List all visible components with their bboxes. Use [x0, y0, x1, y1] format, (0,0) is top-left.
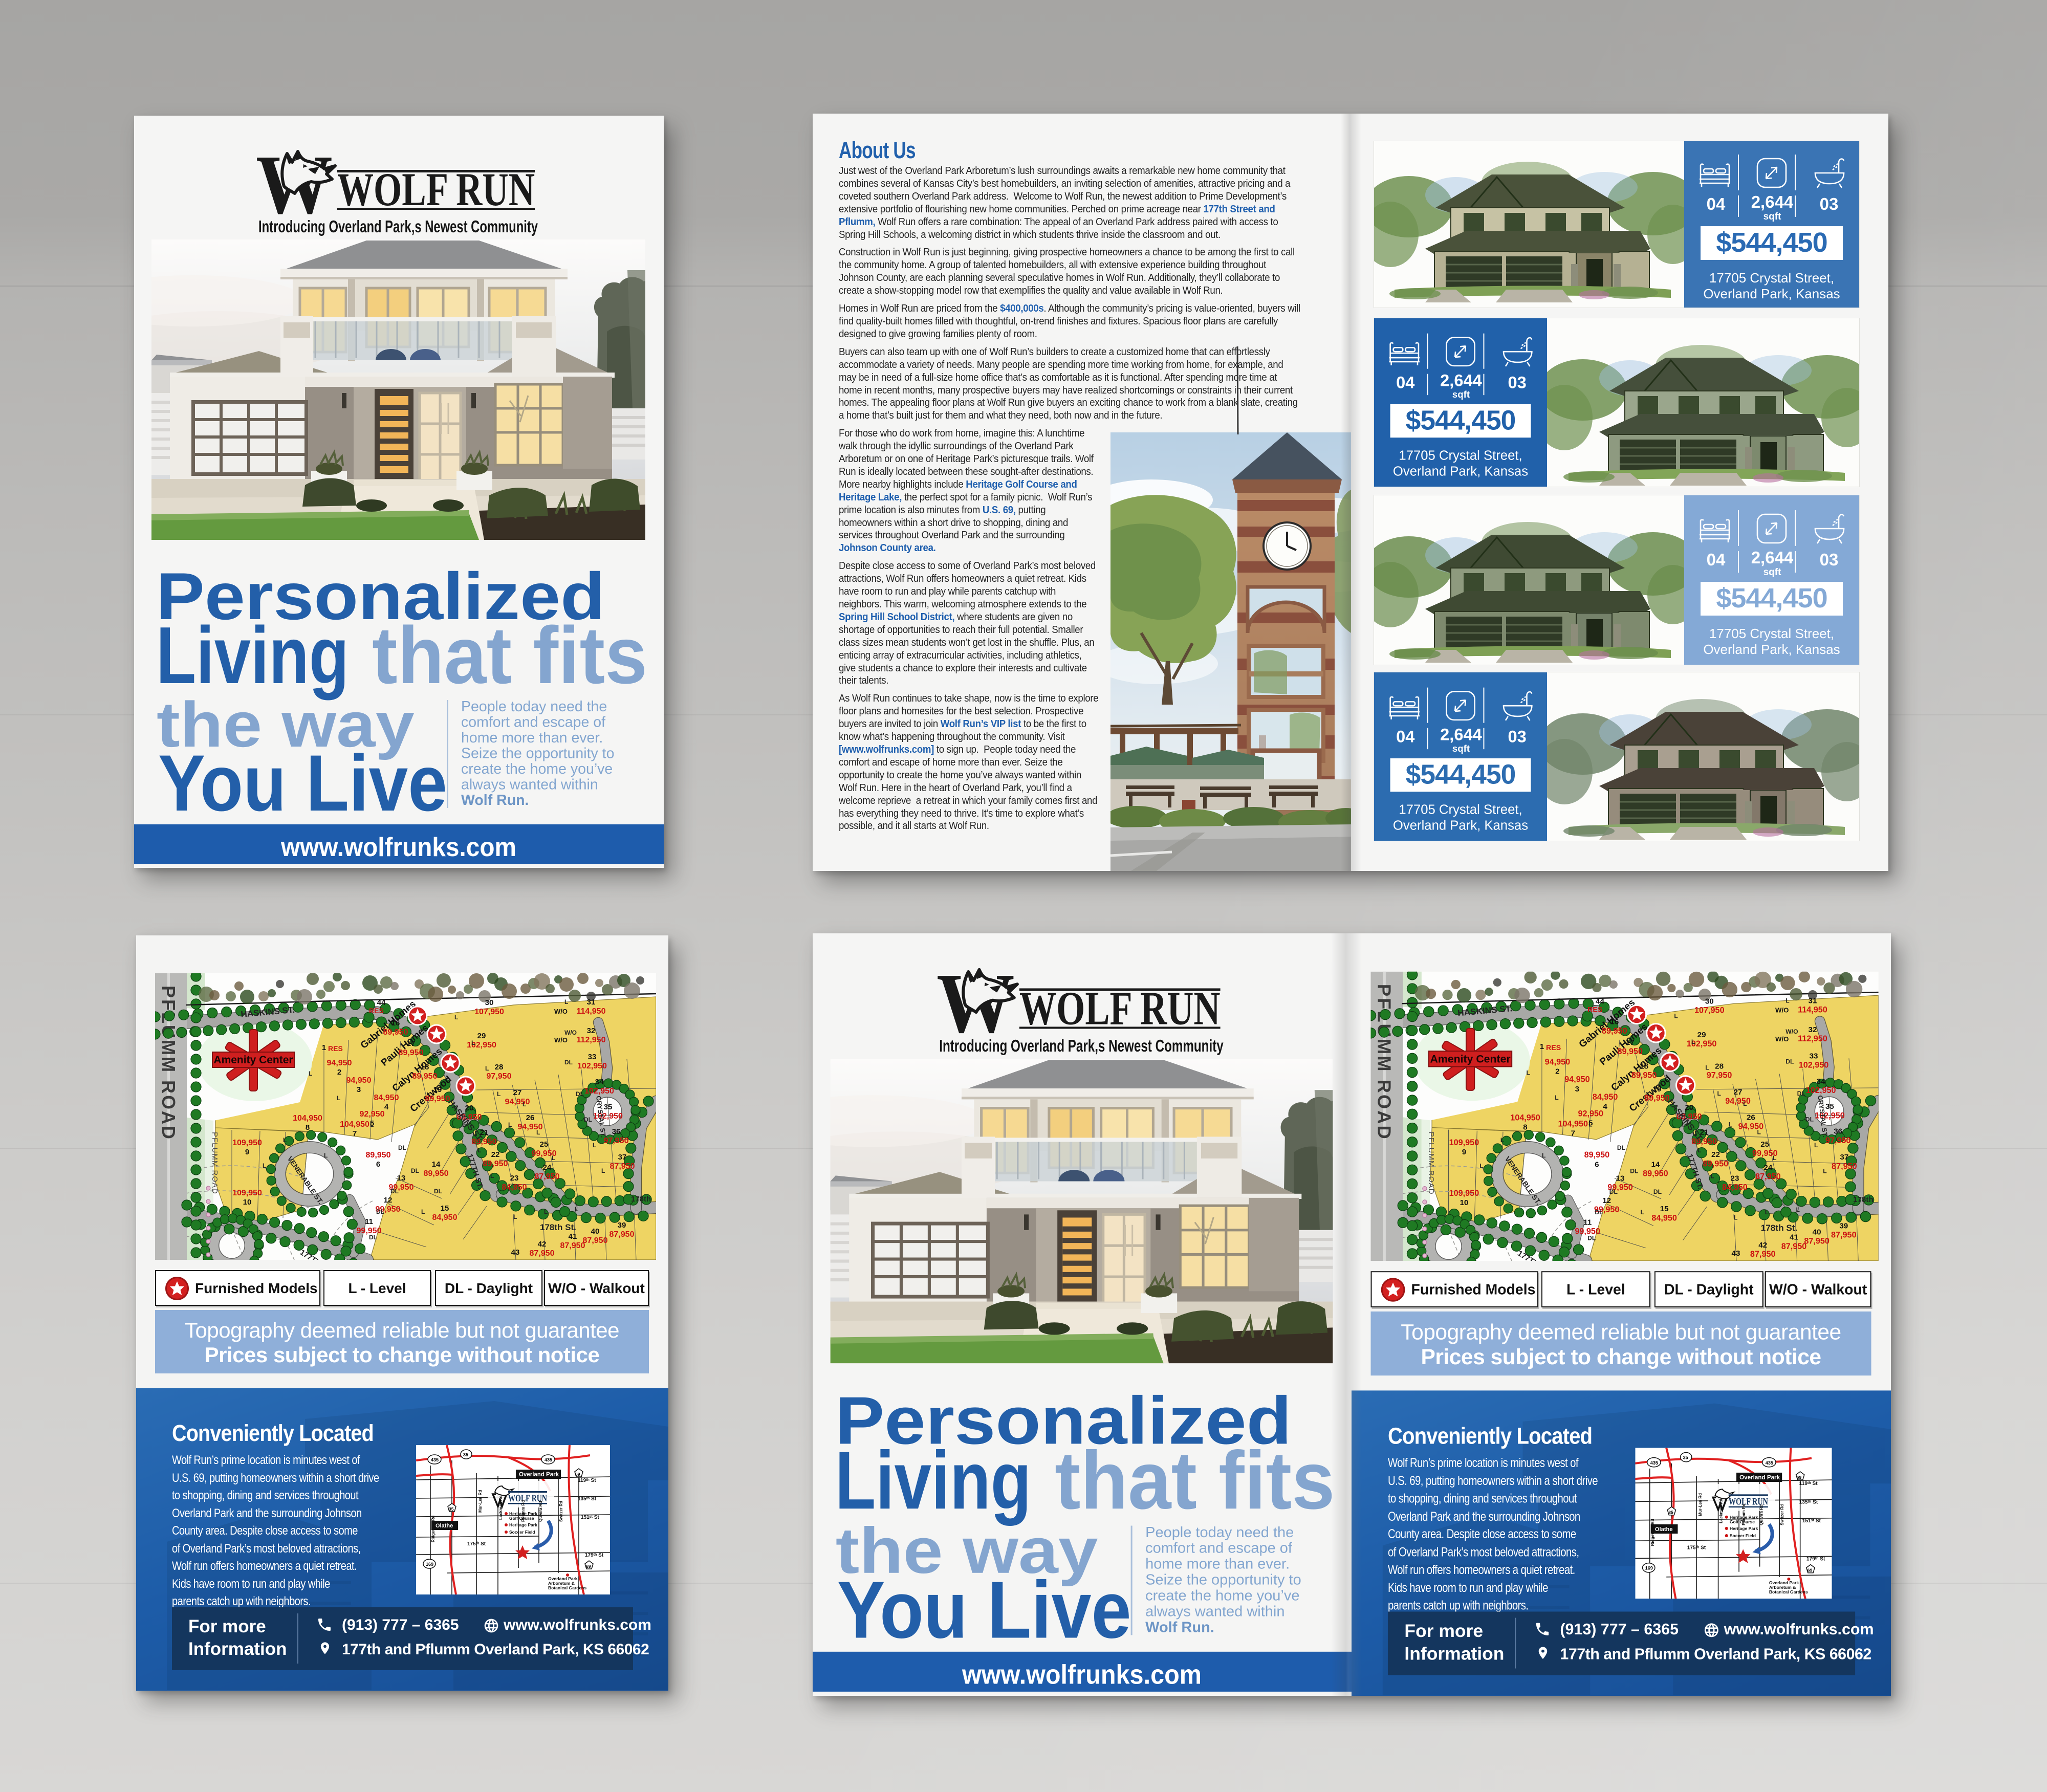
svg-text:3: 3 — [357, 1085, 361, 1094]
svg-text:107,950: 107,950 — [1694, 1006, 1725, 1015]
svg-text:DL: DL — [376, 1208, 384, 1215]
svg-text:Overland Park: Overland Park — [1739, 1474, 1780, 1481]
svg-text:9: 9 — [245, 1148, 249, 1156]
svg-text:20: 20 — [465, 1104, 474, 1112]
svg-text:Living: Living — [835, 1434, 1032, 1526]
svg-text:L: L — [1691, 1038, 1695, 1045]
svg-text:W/O: W/O — [1785, 1028, 1798, 1035]
svg-text:15: 15 — [1660, 1205, 1669, 1213]
svg-text:84,950: 84,950 — [502, 1183, 527, 1192]
svg-text:03: 03 — [1508, 727, 1527, 746]
svg-text:L: L — [513, 1213, 517, 1220]
svg-text:Seize the opportunity to: Seize the opportunity to — [1145, 1572, 1301, 1588]
svg-text:97,950: 97,950 — [1825, 1136, 1851, 1145]
svg-text:89,950: 89,950 — [1644, 1094, 1670, 1103]
svg-text:sqft: sqft — [1452, 743, 1470, 754]
svg-text:L: L — [1773, 1154, 1777, 1162]
svg-text:22: 22 — [491, 1150, 500, 1159]
svg-text:DL: DL — [1595, 1209, 1603, 1216]
svg-text:L: L — [1500, 1137, 1505, 1144]
svg-text:87,950: 87,950 — [530, 1249, 555, 1258]
svg-text:97,950: 97,950 — [1707, 1071, 1732, 1080]
svg-text:104,950: 104,950 — [1510, 1113, 1540, 1122]
svg-text:L: L — [454, 1014, 458, 1021]
svg-text:41: 41 — [569, 1232, 577, 1241]
svg-text:RES: RES — [1546, 1044, 1561, 1052]
svg-text:DL: DL — [434, 1188, 442, 1195]
svg-text:109,950: 109,950 — [1449, 1138, 1479, 1147]
svg-text:35: 35 — [1668, 1510, 1673, 1515]
svg-text:L: L — [1641, 1209, 1645, 1216]
svg-text:30: 30 — [1705, 997, 1714, 1006]
svg-text:DL: DL — [390, 1188, 399, 1195]
svg-text:10: 10 — [243, 1198, 252, 1207]
svg-text:28: 28 — [495, 1063, 504, 1072]
svg-text:18: 18 — [1640, 1062, 1648, 1071]
svg-text:L: L — [564, 998, 568, 1006]
svg-text:112,950: 112,950 — [1798, 1034, 1827, 1043]
svg-text:Amenity Center: Amenity Center — [1430, 1053, 1510, 1065]
svg-text:35: 35 — [449, 1506, 454, 1512]
svg-text:L: L — [1717, 1090, 1722, 1097]
svg-text:87,950: 87,950 — [1755, 1172, 1781, 1182]
svg-text:87,950: 87,950 — [1750, 1250, 1776, 1259]
svg-text:Introducing Overland Park,s Ne: Introducing Overland Park,s Newest Commu… — [939, 1037, 1224, 1056]
svg-text:L: L — [485, 1065, 489, 1072]
svg-text:Amenity Center: Amenity Center — [213, 1054, 293, 1066]
svg-text:27: 27 — [513, 1088, 522, 1097]
svg-text:17705 Crystal Street,: 17705 Crystal Street, — [1399, 449, 1522, 463]
svg-text:L: L — [1785, 997, 1790, 1004]
svg-text:14: 14 — [432, 1160, 441, 1169]
svg-text:always wanted within: always wanted within — [1145, 1603, 1284, 1620]
svg-text:You Live: You Live — [158, 739, 447, 828]
svg-text:169: 169 — [426, 1562, 433, 1567]
svg-text:17705 Crystal Street,: 17705 Crystal Street, — [1399, 803, 1522, 817]
svg-text:109,950: 109,950 — [1449, 1189, 1479, 1198]
svg-text:Overland Park, Kansas: Overland Park, Kansas — [1393, 464, 1528, 478]
svg-text:26: 26 — [526, 1113, 535, 1122]
svg-text:9: 9 — [1462, 1148, 1466, 1156]
svg-text:2,644: 2,644 — [1440, 725, 1482, 744]
svg-text:17705 Crystal Street,: 17705 Crystal Street, — [1709, 270, 1834, 286]
svg-text:2: 2 — [337, 1068, 341, 1077]
svg-text:sqft: sqft — [1763, 211, 1782, 222]
svg-text:L: L — [1542, 1152, 1546, 1159]
svg-text:109,950: 109,950 — [232, 1189, 262, 1197]
svg-text:18: 18 — [421, 1063, 429, 1072]
svg-text:$544,450: $544,450 — [1716, 583, 1827, 614]
svg-text:www.wolfrunks.com: www.wolfrunks.com — [280, 833, 516, 862]
svg-text:Ridgeview Rd: Ridgeview Rd — [431, 1515, 435, 1542]
svg-text:31: 31 — [1809, 996, 1817, 1005]
svg-text:92,950: 92,950 — [360, 1110, 385, 1119]
svg-text:W/O: W/O — [1775, 1035, 1789, 1043]
svg-text:89,950: 89,950 — [1631, 1071, 1657, 1080]
svg-text:104,950: 104,950 — [293, 1114, 322, 1123]
svg-text:178th St.: 178th St. — [1761, 1223, 1798, 1233]
svg-text:that fits: that fits — [1055, 1434, 1335, 1526]
svg-text:102,950: 102,950 — [1799, 1060, 1829, 1069]
svg-text:102,950: 102,950 — [1806, 1086, 1836, 1095]
svg-text:69: 69 — [575, 1472, 580, 1477]
svg-text:8: 8 — [306, 1123, 310, 1132]
svg-text:25: 25 — [1760, 1140, 1769, 1149]
svg-text:L: L — [1734, 1214, 1738, 1221]
svg-text:Olathe: Olathe — [435, 1523, 453, 1529]
svg-text:40: 40 — [1813, 1228, 1821, 1237]
svg-text:107,950: 107,950 — [474, 1008, 504, 1016]
svg-text:DL: DL — [1653, 1188, 1662, 1195]
svg-text:109,950: 109,950 — [232, 1139, 262, 1147]
svg-text:94,950: 94,950 — [1564, 1075, 1590, 1084]
svg-text:36: 36 — [612, 1127, 621, 1136]
svg-text:L: L — [1757, 1129, 1761, 1136]
svg-text:16: 16 — [391, 1019, 400, 1028]
svg-text:31: 31 — [587, 998, 596, 1007]
svg-text:L: L — [1527, 1069, 1531, 1077]
svg-text:L: L — [1743, 1100, 1747, 1107]
svg-text:10: 10 — [1460, 1198, 1468, 1207]
svg-text:89,950: 89,950 — [1617, 1047, 1643, 1056]
svg-text:L: L — [471, 1039, 475, 1046]
svg-text:26: 26 — [1747, 1113, 1755, 1122]
svg-text:L: L — [490, 1172, 494, 1179]
svg-text:Olathe: Olathe — [1655, 1526, 1673, 1533]
svg-text:89,950: 89,950 — [399, 1048, 424, 1057]
svg-text:42: 42 — [538, 1240, 547, 1249]
svg-text:178th: 178th — [1853, 1195, 1874, 1204]
svg-text:69: 69 — [1808, 1568, 1813, 1573]
svg-text:102,950: 102,950 — [584, 1087, 614, 1096]
svg-text:39: 39 — [618, 1221, 626, 1230]
svg-text:17705 Crystal Street,: 17705 Crystal Street, — [1709, 626, 1834, 641]
svg-text:97,950: 97,950 — [487, 1072, 512, 1081]
svg-text:PFLUMM ROAD: PFLUMM ROAD — [210, 1132, 219, 1194]
svg-text:sqft: sqft — [1763, 567, 1782, 578]
svg-text:PFLUMM ROAD: PFLUMM ROAD — [1374, 984, 1395, 1141]
svg-text:Switzer Rd: Switzer Rd — [1780, 1504, 1784, 1525]
svg-text:114,950: 114,950 — [577, 1007, 606, 1016]
svg-text:WOLF RUN: WOLF RUN — [337, 163, 535, 215]
svg-text:84,950: 84,950 — [1593, 1092, 1618, 1102]
svg-text:35: 35 — [1683, 1455, 1688, 1460]
svg-text:27: 27 — [1734, 1088, 1743, 1097]
svg-text:L: L — [1765, 1209, 1769, 1216]
svg-text:87,950: 87,950 — [583, 1236, 608, 1245]
svg-text:Lackman Rd: Lackman Rd — [498, 1495, 503, 1520]
svg-text:114,950: 114,950 — [1798, 1005, 1827, 1014]
svg-text:34: 34 — [1817, 1077, 1825, 1086]
svg-text:03: 03 — [1508, 373, 1527, 391]
svg-text:32: 32 — [1809, 1025, 1817, 1034]
svg-text:84,950: 84,950 — [1651, 1213, 1677, 1222]
svg-text:41: 41 — [1790, 1233, 1798, 1242]
svg-text:L: L — [421, 1208, 425, 1215]
svg-text:L: L — [1705, 1064, 1709, 1072]
svg-text:37: 37 — [1840, 1153, 1848, 1162]
svg-text:42: 42 — [1758, 1241, 1767, 1250]
svg-text:Seize the opportunity to: Seize the opportunity to — [461, 746, 614, 762]
svg-text:12: 12 — [1602, 1196, 1611, 1205]
svg-text:35: 35 — [604, 1103, 613, 1111]
svg-text:178th: 178th — [631, 1195, 651, 1204]
svg-text:Heritage Park: Heritage Park — [1730, 1526, 1758, 1531]
svg-text:L: L — [1588, 1121, 1593, 1128]
svg-text:29: 29 — [1697, 1031, 1706, 1039]
svg-text:Soccer Field: Soccer Field — [509, 1529, 535, 1535]
svg-text:You Live: You Live — [837, 1565, 1131, 1655]
svg-text:Soccer Field: Soccer Field — [1730, 1533, 1756, 1538]
svg-text:DL: DL — [411, 1167, 419, 1174]
svg-text:89,950: 89,950 — [1602, 1026, 1627, 1036]
svg-text:L: L — [1479, 1162, 1484, 1169]
svg-text:RES: RES — [1587, 1006, 1602, 1014]
svg-text:87,950: 87,950 — [610, 1162, 635, 1171]
svg-text:43: 43 — [1732, 1249, 1740, 1258]
svg-text:7: 7 — [1571, 1129, 1575, 1138]
svg-text:28: 28 — [1715, 1062, 1724, 1071]
svg-text:13: 13 — [397, 1174, 406, 1183]
svg-text:Quivira Rd: Quivira Rd — [1759, 1504, 1764, 1525]
svg-text:104,950: 104,950 — [340, 1120, 369, 1129]
svg-text:DL: DL — [1797, 1090, 1806, 1097]
svg-text:87,950: 87,950 — [1804, 1237, 1830, 1246]
svg-text:W/O: W/O — [554, 1036, 568, 1044]
svg-text:$544,450: $544,450 — [1716, 227, 1827, 258]
svg-text:11: 11 — [365, 1217, 373, 1226]
svg-text:DL: DL — [1609, 1188, 1618, 1195]
svg-text:87,950: 87,950 — [535, 1172, 560, 1181]
svg-text:435: 435 — [431, 1457, 439, 1462]
svg-text:L: L — [1814, 1142, 1818, 1149]
svg-text:40: 40 — [591, 1227, 600, 1236]
svg-text:3: 3 — [1575, 1085, 1579, 1094]
svg-text:2: 2 — [1555, 1067, 1559, 1076]
svg-text:24: 24 — [543, 1163, 552, 1172]
svg-text:sqft: sqft — [1452, 389, 1470, 400]
svg-text:Wolf Run.: Wolf Run. — [461, 792, 529, 808]
svg-text:89,950: 89,950 — [1703, 1159, 1729, 1168]
svg-text:home more than ever.: home more than ever. — [1145, 1556, 1290, 1572]
svg-text:30: 30 — [485, 998, 494, 1007]
svg-text:L: L — [477, 1147, 481, 1154]
svg-text:W/O: W/O — [564, 1029, 577, 1036]
svg-text:Quivira Rd: Quivira Rd — [538, 1501, 543, 1522]
svg-text:1: 1 — [1540, 1042, 1544, 1051]
svg-text:178th St.: 178th St. — [540, 1222, 576, 1232]
svg-text:23: 23 — [1731, 1174, 1739, 1183]
svg-text:43: 43 — [511, 1248, 520, 1257]
svg-text:DL: DL — [398, 1144, 406, 1151]
svg-text:87,950: 87,950 — [609, 1230, 635, 1239]
svg-text:14: 14 — [1651, 1160, 1660, 1169]
svg-text:89,950: 89,950 — [483, 1160, 508, 1168]
svg-text:comfort and escape of: comfort and escape of — [1145, 1540, 1293, 1557]
svg-text:L: L — [1823, 1167, 1827, 1174]
svg-text:87,950: 87,950 — [1781, 1242, 1807, 1251]
svg-text:People today need the: People today need the — [1145, 1524, 1294, 1541]
svg-text:169: 169 — [1645, 1566, 1653, 1571]
svg-text:L: L — [552, 1154, 555, 1162]
svg-text:15: 15 — [441, 1204, 449, 1213]
svg-text:04: 04 — [1707, 194, 1726, 213]
svg-text:$544,450: $544,450 — [1406, 405, 1516, 435]
svg-text:2,644: 2,644 — [1440, 370, 1482, 389]
svg-text:Ridgeview Rd: Ridgeview Rd — [1650, 1519, 1655, 1546]
svg-text:89,950: 89,950 — [366, 1151, 391, 1160]
svg-text:2,644: 2,644 — [1751, 548, 1794, 567]
svg-text:DL: DL — [576, 1090, 584, 1098]
svg-text:89,950: 89,950 — [1584, 1150, 1610, 1160]
svg-text:435: 435 — [545, 1457, 552, 1462]
svg-text:35: 35 — [463, 1452, 468, 1457]
svg-text:24: 24 — [1763, 1163, 1772, 1172]
svg-text:DL: DL — [1785, 1058, 1794, 1065]
svg-text:create the home you’ve: create the home you’ve — [1145, 1588, 1299, 1604]
svg-text:L: L — [1674, 1013, 1678, 1020]
svg-text:L: L — [337, 1095, 340, 1102]
svg-text:DL: DL — [1617, 1144, 1626, 1151]
svg-text:4: 4 — [384, 1103, 389, 1111]
svg-text:04: 04 — [1707, 550, 1726, 569]
svg-text:89,950: 89,950 — [412, 1072, 438, 1081]
svg-text:69: 69 — [586, 1564, 591, 1569]
svg-text:create the home you’ve: create the home you’ve — [461, 761, 613, 777]
svg-text:W/O: W/O — [554, 1008, 568, 1015]
svg-text:89,950: 89,950 — [1643, 1169, 1668, 1178]
svg-text:L: L — [544, 1208, 548, 1215]
svg-text:17: 17 — [407, 1039, 416, 1048]
svg-text:L: L — [309, 1070, 312, 1077]
svg-text:Overland Park, Kansas: Overland Park, Kansas — [1703, 286, 1840, 301]
svg-text:33: 33 — [1810, 1052, 1818, 1060]
svg-text:Overland Park, Kansas: Overland Park, Kansas — [1703, 642, 1840, 657]
svg-text:L: L — [593, 1142, 596, 1149]
svg-text:92,950: 92,950 — [1578, 1109, 1603, 1118]
svg-text:L: L — [1729, 1121, 1733, 1128]
svg-text:13: 13 — [1616, 1174, 1625, 1183]
svg-text:84,950: 84,950 — [432, 1213, 458, 1222]
svg-text:2,644: 2,644 — [1751, 192, 1794, 211]
svg-text:11: 11 — [1583, 1218, 1592, 1227]
svg-text:4: 4 — [1603, 1102, 1607, 1111]
svg-text:94,950: 94,950 — [346, 1076, 372, 1085]
svg-text:Golf Course: Golf Course — [1730, 1519, 1755, 1524]
svg-text:20: 20 — [1685, 1103, 1693, 1112]
svg-text:7: 7 — [353, 1129, 357, 1138]
svg-text:DL: DL — [584, 1116, 592, 1123]
svg-text:DL: DL — [1630, 1167, 1639, 1174]
svg-text:37: 37 — [618, 1153, 627, 1162]
svg-text:23: 23 — [510, 1174, 519, 1183]
svg-text:89,950: 89,950 — [383, 1028, 408, 1037]
svg-text:8: 8 — [1523, 1123, 1527, 1132]
svg-text:22: 22 — [1711, 1150, 1720, 1159]
svg-text:32: 32 — [587, 1026, 596, 1035]
svg-text:97,950: 97,950 — [604, 1137, 629, 1145]
svg-text:comfort and escape of: comfort and escape of — [461, 714, 605, 731]
svg-text:L: L — [324, 1152, 328, 1159]
svg-text:Mur-Len Rd: Mur-Len Rd — [478, 1490, 483, 1513]
svg-text:L: L — [1796, 1206, 1800, 1213]
svg-text:84,950: 84,950 — [374, 1094, 399, 1102]
svg-text:Lackman Rd: Lackman Rd — [1719, 1499, 1724, 1523]
svg-text:25: 25 — [540, 1140, 549, 1149]
svg-text:36: 36 — [1834, 1127, 1842, 1136]
svg-text:102,950: 102,950 — [577, 1062, 607, 1070]
svg-text:6: 6 — [376, 1160, 380, 1169]
svg-text:L: L — [1710, 1173, 1714, 1180]
svg-text:Wolf Run.: Wolf Run. — [1145, 1619, 1214, 1635]
svg-text:94,950: 94,950 — [1545, 1057, 1571, 1066]
svg-text:DL: DL — [564, 1059, 573, 1066]
svg-text:435: 435 — [1650, 1460, 1658, 1466]
svg-text:Introducing Overland Park,s Ne: Introducing Overland Park,s Newest Commu… — [258, 217, 538, 236]
svg-text:04: 04 — [1396, 727, 1414, 746]
svg-text:19: 19 — [1653, 1085, 1662, 1094]
svg-text:435: 435 — [1766, 1460, 1773, 1466]
svg-text:16: 16 — [1610, 1018, 1619, 1026]
svg-text:87,950: 87,950 — [1832, 1162, 1857, 1171]
svg-text:03: 03 — [1820, 550, 1839, 569]
svg-text:www.wolfrunks.com: www.wolfrunks.com — [962, 1660, 1202, 1690]
svg-text:6: 6 — [1595, 1160, 1599, 1169]
svg-text:DL: DL — [369, 1234, 377, 1241]
svg-text:Living: Living — [156, 610, 349, 701]
svg-text:04: 04 — [1396, 373, 1414, 391]
svg-text:always wanted within: always wanted within — [461, 777, 598, 793]
svg-text:87,950: 87,950 — [1831, 1231, 1857, 1240]
svg-text:L: L — [283, 1137, 287, 1144]
svg-text:PFLUMM ROAD: PFLUMM ROAD — [1427, 1132, 1435, 1195]
svg-text:94,950: 94,950 — [327, 1059, 352, 1067]
svg-text:home more than ever.: home more than ever. — [461, 730, 603, 746]
svg-text:29: 29 — [477, 1032, 486, 1040]
svg-text:34: 34 — [595, 1078, 604, 1086]
svg-text:L: L — [522, 1101, 526, 1108]
svg-text:$544,450: $544,450 — [1406, 759, 1516, 790]
svg-text:87,950: 87,950 — [560, 1241, 585, 1250]
svg-text:PFLUMM ROAD: PFLUMM ROAD — [158, 986, 179, 1141]
svg-text:Overland Park, Kansas: Overland Park, Kansas — [1393, 818, 1528, 833]
svg-text:1: 1 — [322, 1043, 326, 1052]
svg-text:69: 69 — [1797, 1475, 1802, 1480]
svg-text:84,950: 84,950 — [1722, 1183, 1748, 1192]
svg-text:12: 12 — [384, 1196, 393, 1205]
svg-text:89,950: 89,950 — [425, 1095, 450, 1103]
svg-text:People today need the: People today need the — [461, 698, 607, 715]
svg-text:89,950: 89,950 — [424, 1169, 449, 1178]
svg-text:Switzer Rd: Switzer Rd — [559, 1501, 563, 1522]
svg-text:Mur-Len Rd: Mur-Len Rd — [1698, 1493, 1703, 1516]
svg-text:03: 03 — [1820, 194, 1839, 213]
svg-text:Golf Course: Golf Course — [509, 1516, 534, 1521]
svg-text:L: L — [536, 1129, 540, 1136]
svg-text:L: L — [575, 1206, 578, 1213]
svg-text:Heritage Park: Heritage Park — [509, 1522, 537, 1527]
svg-text:RES: RES — [328, 1044, 343, 1053]
svg-text:104,950: 104,950 — [1558, 1120, 1588, 1129]
svg-text:DL: DL — [1805, 1116, 1814, 1123]
svg-text:44: 44 — [377, 998, 386, 1007]
svg-text:35: 35 — [1825, 1102, 1834, 1111]
svg-text:W/O: W/O — [1775, 1006, 1789, 1014]
svg-text:L: L — [508, 1121, 512, 1128]
svg-text:L: L — [497, 1090, 500, 1098]
svg-text:L: L — [1555, 1094, 1559, 1101]
svg-text:Botanical Gardens: Botanical Gardens — [548, 1585, 586, 1590]
